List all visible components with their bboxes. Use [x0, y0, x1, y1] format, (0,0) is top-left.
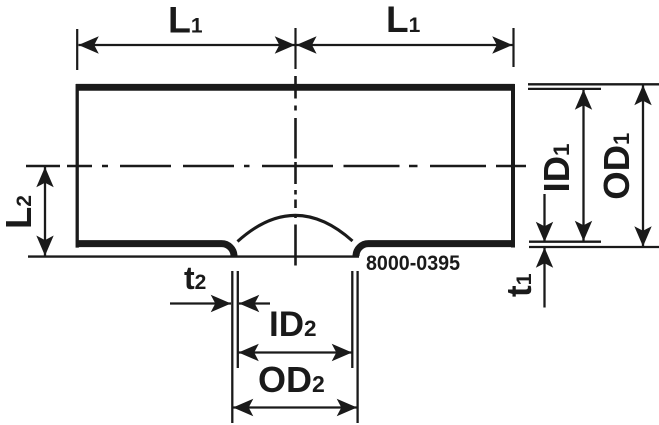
svg-text:8000-0395: 8000-0395 [366, 251, 460, 275]
